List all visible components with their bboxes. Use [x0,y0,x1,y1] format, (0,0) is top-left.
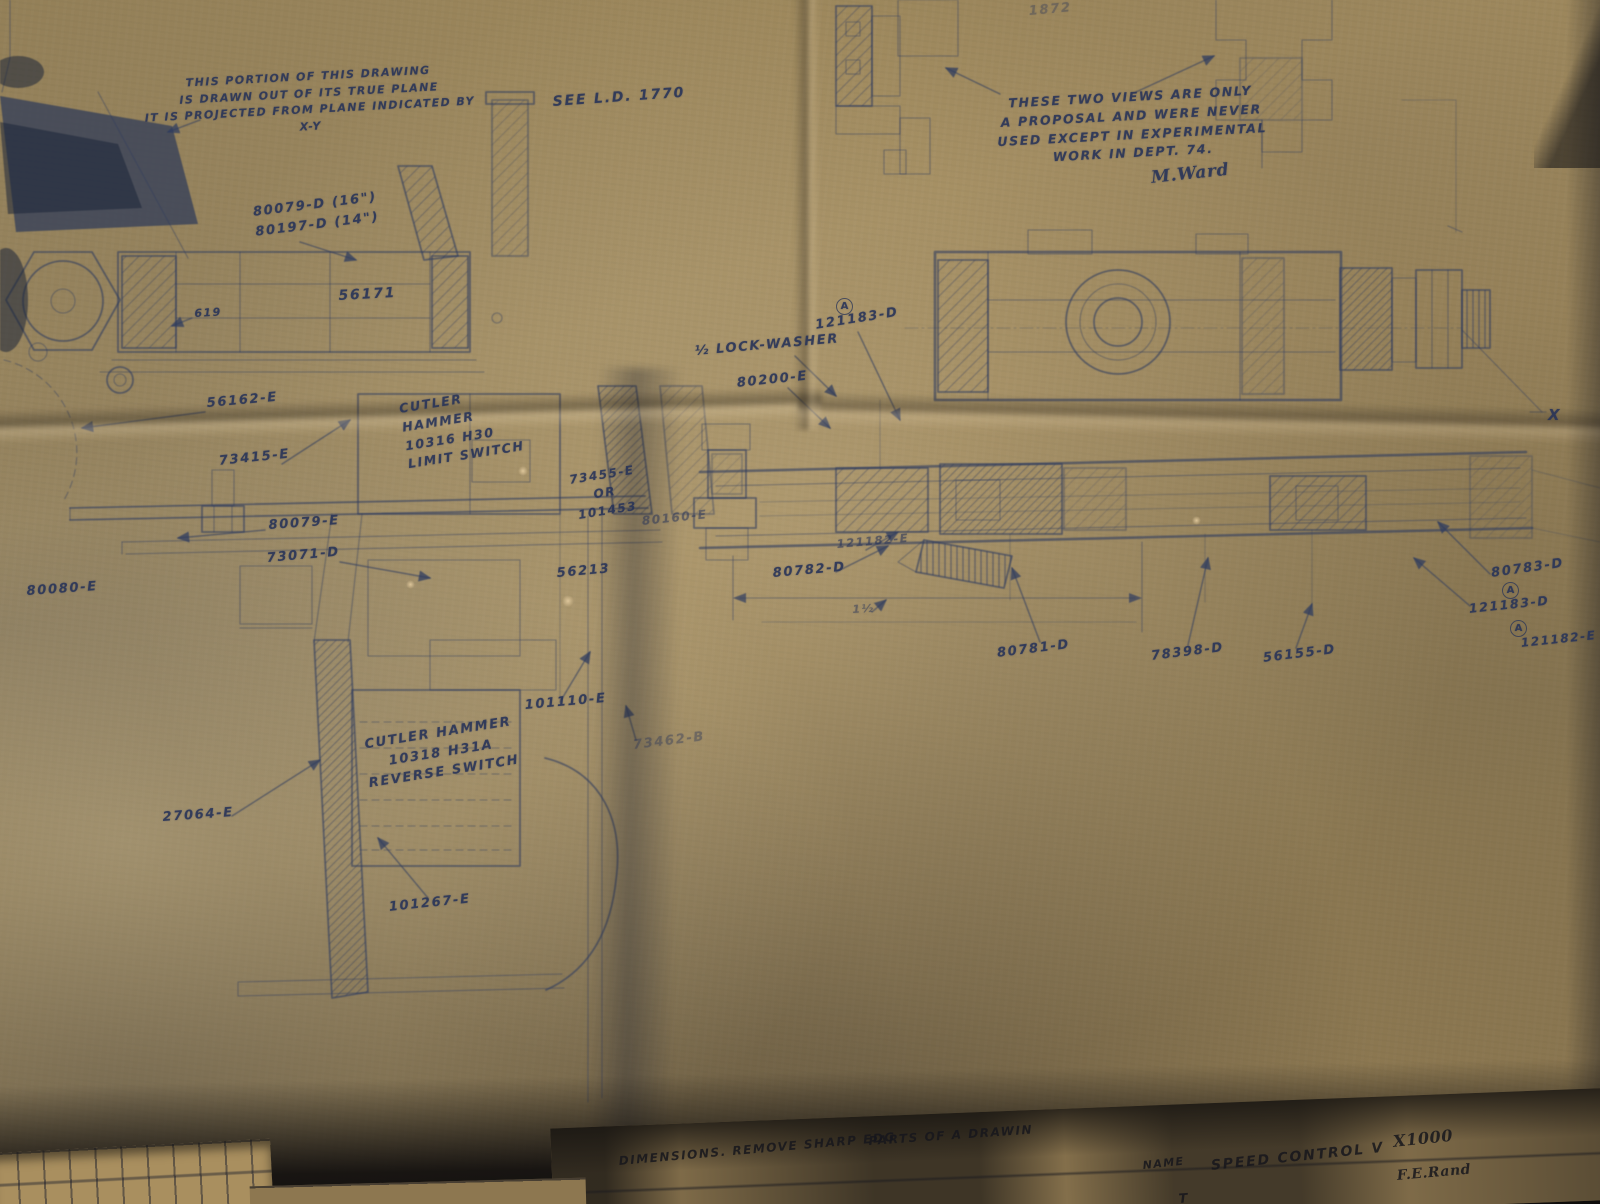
frag-speed-control: SPEED CONTROL V [1210,1138,1385,1177]
annotation-layer: THIS PORTION OF THIS DRAWING IS DRAWN OU… [0,0,1600,1204]
label-80783d: 80783-D [1490,554,1565,584]
label-80782d: 80782-D [772,558,847,584]
scribble-top: 1872 [1028,0,1072,21]
label-101267e: 101267-E [388,889,472,917]
mark-x: X [1548,404,1562,427]
frag-name: NAME [1142,1154,1185,1175]
ref-see-ld-1770: SEE L.D. 1770 [552,83,686,113]
label-80079e: 80079-E [268,511,341,535]
label-80079d-80197d: 80079-D (16") 80197-D (14") [252,188,380,242]
label-73415e: 73415-E [218,445,291,472]
frag-x1000: X1000 [1392,1124,1454,1154]
label-619: 619 [194,305,222,323]
label-73455e: 73455-E OR 101453 [562,460,647,526]
label-80781d: 80781-D [996,635,1071,663]
frag-rand: F.E.Rand [1396,1160,1472,1187]
label-121182e-mid: 121182-E [836,530,910,554]
label-56213: 56213 [556,559,611,583]
note-cutler-reverse: CUTLER HAMMER 10318 H31A REVERSE SWITCH [360,712,522,794]
label-lock-washer: ½ LOCK-WASHER [694,329,840,361]
label-56162e: 56162-E [206,388,279,414]
label-27064e: 27064-E [162,803,235,827]
label-56155d: 56155-D [1262,640,1337,668]
label-121183d-right: 121183-D [1468,592,1550,619]
label-78398d: 78398-D [1150,638,1225,666]
frag-remove-sharp-edges: DIMENSIONS. REMOVE SHARP EDG [618,1128,897,1170]
label-101110e: 101110-E [524,689,607,716]
label-73462b: 73462-B [632,727,706,755]
blueprint-photo: THIS PORTION OF THIS DRAWING IS DRAWN OU… [0,0,1600,1204]
frag-t: T [1178,1189,1190,1204]
label-80160e: 80160-E [641,505,708,530]
label-73071d: 73071-D [266,543,341,569]
label-56171: 56171 [338,283,397,307]
signature-ward: M.Ward [1150,158,1231,192]
note-out-of-plane: THIS PORTION OF THIS DRAWING IS DRAWN OU… [138,60,481,144]
note-cutler-limit: CUTLER HAMMER 10316 H30 LIMIT SWITCH [398,382,526,474]
note-proposal: THESE TWO VIEWS ARE ONLY A PROPOSAL AND … [980,80,1284,171]
label-80080e: 80080-E [26,577,99,601]
label-121182e-right: 121182-E [1520,626,1597,652]
dim-half: 1½ [852,601,875,619]
label-80200e: 80200-E [736,367,809,394]
